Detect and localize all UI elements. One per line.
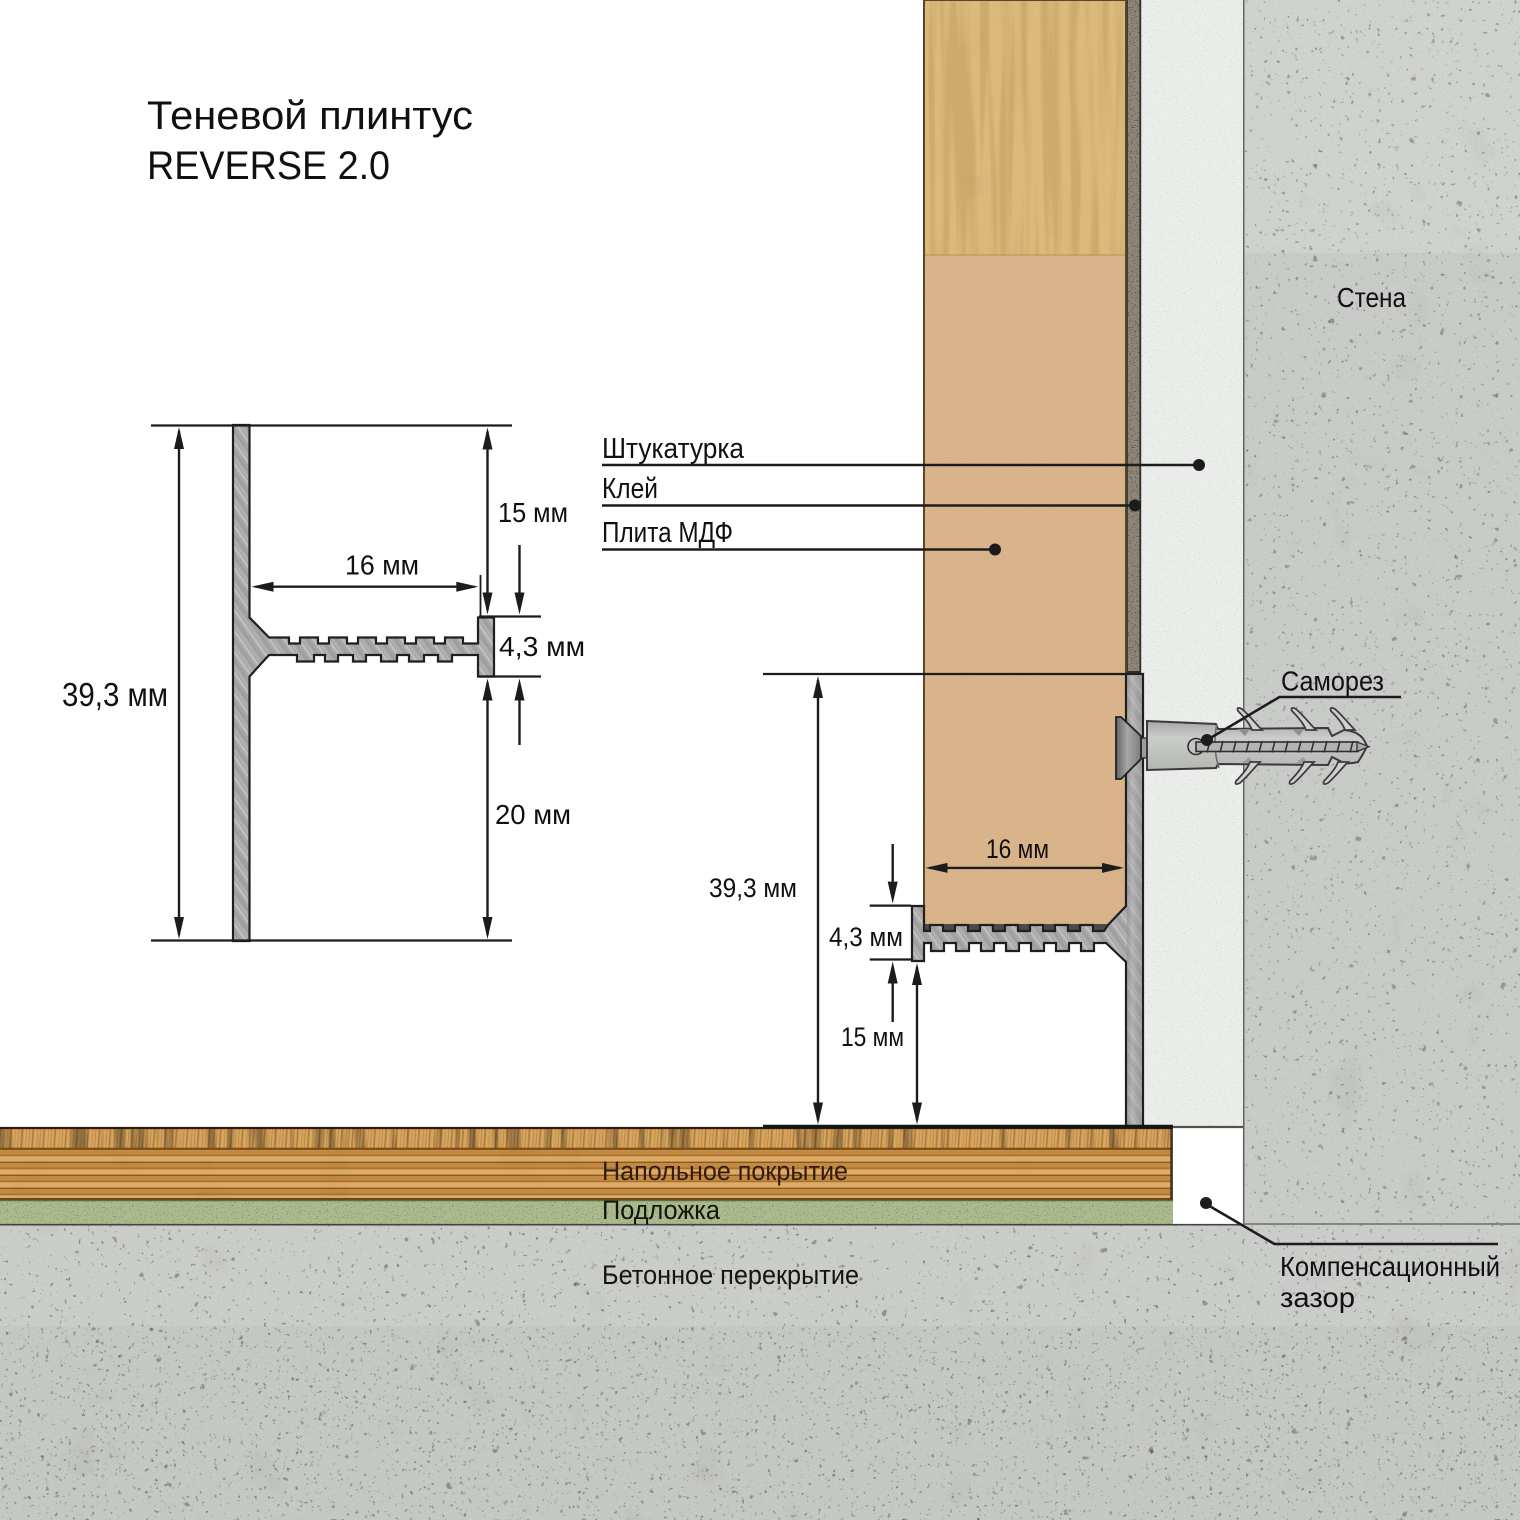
svg-text:Бетонное перекрытие: Бетонное перекрытие bbox=[602, 1260, 859, 1290]
svg-text:20 мм: 20 мм bbox=[495, 799, 571, 830]
svg-text:Стена: Стена bbox=[1337, 282, 1406, 313]
svg-text:16 мм: 16 мм bbox=[986, 834, 1049, 864]
svg-text:4,3 мм: 4,3 мм bbox=[829, 922, 903, 952]
svg-text:зазор: зазор bbox=[1280, 1282, 1355, 1313]
svg-text:Подложка: Подложка bbox=[602, 1195, 721, 1225]
svg-text:39,3 мм: 39,3 мм bbox=[709, 873, 797, 903]
svg-text:Компенсационный: Компенсационный bbox=[1280, 1251, 1500, 1282]
svg-text:Напольное покрытие: Напольное покрытие bbox=[602, 1156, 848, 1186]
svg-text:15 мм: 15 мм bbox=[841, 1022, 904, 1052]
svg-text:Клей: Клей bbox=[602, 473, 658, 505]
svg-text:Саморез: Саморез bbox=[1281, 666, 1384, 697]
svg-text:Теневой плинтус: Теневой плинтус bbox=[147, 94, 473, 138]
svg-text:4,3 мм: 4,3 мм bbox=[499, 631, 585, 662]
svg-text:15 мм: 15 мм bbox=[498, 497, 568, 528]
svg-text:39,3 мм: 39,3 мм bbox=[62, 676, 168, 713]
svg-text:Плита МДФ: Плита МДФ bbox=[602, 517, 733, 549]
svg-text:16 мм: 16 мм bbox=[345, 550, 419, 581]
svg-text:REVERSE 2.0: REVERSE 2.0 bbox=[147, 144, 390, 188]
svg-text:Штукатурка: Штукатурка bbox=[602, 433, 745, 465]
